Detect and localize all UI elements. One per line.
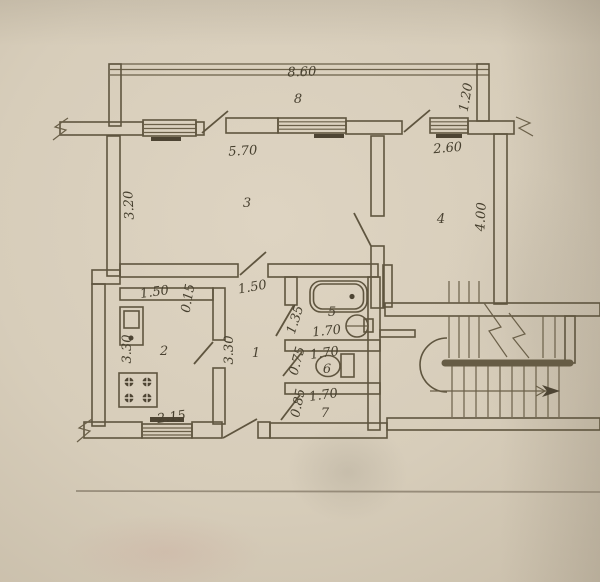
floor-plan-drawing: 8.60 8 1.20 5.70 3.20 3 2.60 4 4.00 1.50… (0, 0, 600, 582)
dim-kitchen-height: 3.30 (120, 335, 135, 364)
room-number-7: 7 (321, 406, 330, 421)
window-sill (436, 134, 462, 138)
room-number-1: 1 (252, 346, 260, 361)
dim-room3-height: 3.20 (121, 190, 137, 220)
dim-room3-window: 5.70 (228, 143, 258, 159)
paper-smudge (288, 422, 408, 522)
photo-top-shadow (0, 0, 600, 46)
dim-room4-window: 2.60 (432, 140, 463, 158)
floor-plan-photo: 8.60 8 1.20 5.70 3.20 3 2.60 4 4.00 1.50… (0, 0, 600, 582)
page-crease-line (76, 491, 600, 492)
dim-hall-height: 3.30 (222, 336, 237, 365)
dim-room4-height: 4.00 (473, 202, 490, 233)
room-number-2: 2 (159, 344, 168, 359)
window-sill (314, 134, 344, 138)
room-number-3: 3 (243, 196, 251, 211)
room-number-5: 5 (328, 305, 336, 320)
dim-bath-length: 1.70 (311, 323, 341, 341)
room-number-4: 4 (436, 212, 445, 227)
room-number-balcony: 8 (294, 92, 302, 107)
window-sill (151, 137, 181, 141)
room-number-6: 6 (323, 362, 331, 377)
dim-balcony-length: 8.60 (287, 65, 316, 81)
